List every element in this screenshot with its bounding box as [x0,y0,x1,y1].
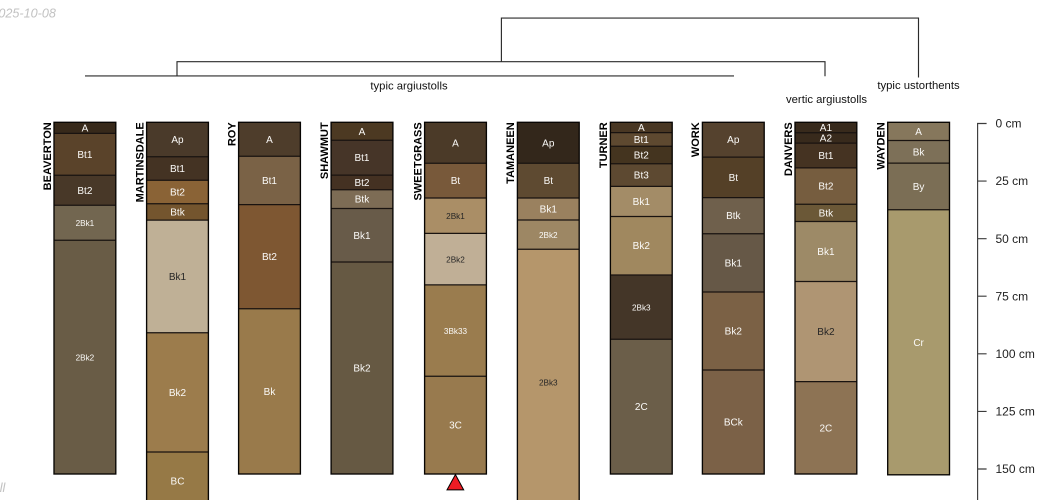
svg-text:Bk2: Bk2 [169,388,187,399]
svg-text:Ap: Ap [542,138,555,149]
svg-text:WORK: WORK [690,122,702,157]
svg-text:Bk: Bk [913,147,926,158]
svg-text:25 cm: 25 cm [996,174,1029,188]
svg-text:Btk: Btk [819,208,834,219]
svg-text:ROY: ROY [226,122,238,147]
svg-text:SHAWMUT: SHAWMUT [319,122,331,179]
svg-text:Bt1: Bt1 [77,150,92,161]
svg-text:Bk2: Bk2 [725,327,743,338]
svg-text:TURNER: TURNER [598,122,610,168]
svg-text:Bt2: Bt2 [634,151,649,162]
svg-text:Bk2: Bk2 [633,241,651,252]
svg-text:A: A [452,138,459,149]
svg-text:2025-10-08: 2025-10-08 [0,7,56,21]
svg-text:3Bk33: 3Bk33 [444,327,468,336]
svg-text:Bt3: Bt3 [634,171,649,182]
svg-text:2Bk3: 2Bk3 [632,304,651,313]
svg-text:Bk1: Bk1 [540,205,558,216]
svg-text:Bk1: Bk1 [353,231,371,242]
svg-text:BEAVERTON: BEAVERTON [42,122,54,190]
svg-text:BCk: BCk [724,418,744,429]
svg-text:2C: 2C [820,423,833,434]
svg-text:Btk: Btk [170,207,185,218]
svg-text:3C: 3C [449,421,462,432]
svg-text:2Bk3: 2Bk3 [539,379,558,388]
svg-text:75 cm: 75 cm [996,289,1029,303]
svg-text:BC: BC [171,477,185,488]
svg-text:DANVERS: DANVERS [783,122,795,176]
svg-text:0 cm: 0 cm [996,117,1022,131]
svg-text:Bk1: Bk1 [725,258,743,269]
svg-text:2Bk1: 2Bk1 [446,212,465,221]
svg-text:Btk: Btk [355,195,370,206]
svg-text:Bt: Bt [451,176,461,187]
svg-text:Bt: Bt [544,176,554,187]
svg-text:typic ustorthents: typic ustorthents [877,80,960,92]
svg-text:Bk1: Bk1 [169,272,187,283]
svg-text:2Bk1: 2Bk1 [76,219,95,228]
svg-text:Bt2: Bt2 [354,178,369,189]
svg-text:Bt2: Bt2 [77,186,92,197]
svg-text:typic argiustolls: typic argiustolls [370,80,448,92]
svg-text:50 cm: 50 cm [996,232,1029,246]
svg-text:Bt2: Bt2 [170,188,185,199]
svg-text:A: A [359,127,366,138]
svg-text:TAMANEEN: TAMANEEN [505,122,517,184]
svg-text:2Bk2: 2Bk2 [539,231,558,240]
svg-text:Bk2: Bk2 [817,327,835,338]
svg-text:vertic argiustolls: vertic argiustolls [786,94,867,106]
svg-text:2Bk2: 2Bk2 [446,256,465,265]
svg-text:Cr: Cr [913,338,924,349]
svg-text:Bt2: Bt2 [818,182,833,193]
svg-text:SWEETGRASS: SWEETGRASS [412,122,424,200]
svg-text:Btk: Btk [726,211,741,222]
svg-text:Bt1: Bt1 [354,153,369,164]
svg-text:By: By [913,182,925,193]
svg-text:2Bk2: 2Bk2 [76,354,95,363]
svg-text:Bt1: Bt1 [170,164,185,175]
svg-text:Bk1: Bk1 [817,247,835,258]
svg-text:Bt: Bt [729,173,739,184]
svg-text:2C: 2C [635,402,648,413]
svg-text:125 cm: 125 cm [996,405,1035,419]
svg-text:A: A [82,123,89,134]
svg-text:Bk2: Bk2 [353,364,371,375]
svg-text:A: A [266,135,273,146]
svg-text:Bk1: Bk1 [633,197,651,208]
svg-text:Bt1: Bt1 [634,135,649,146]
svg-text:Ap: Ap [171,135,184,146]
svg-text:Bt1: Bt1 [262,176,277,187]
svg-text:150 cm: 150 cm [996,462,1035,476]
svg-text:A: A [915,127,922,138]
svg-text:Bt2: Bt2 [262,252,277,263]
svg-text:Bk: Bk [264,387,277,398]
svg-text:100 cm: 100 cm [996,347,1035,361]
svg-text:A: A [638,123,645,134]
svg-text:Ap: Ap [727,135,740,146]
svg-text:WAYDEN: WAYDEN [876,122,888,169]
svg-text:Bt1: Bt1 [818,151,833,162]
svg-text:A2: A2 [820,133,833,144]
svg-text:MARTINSDALE: MARTINSDALE [134,122,146,202]
